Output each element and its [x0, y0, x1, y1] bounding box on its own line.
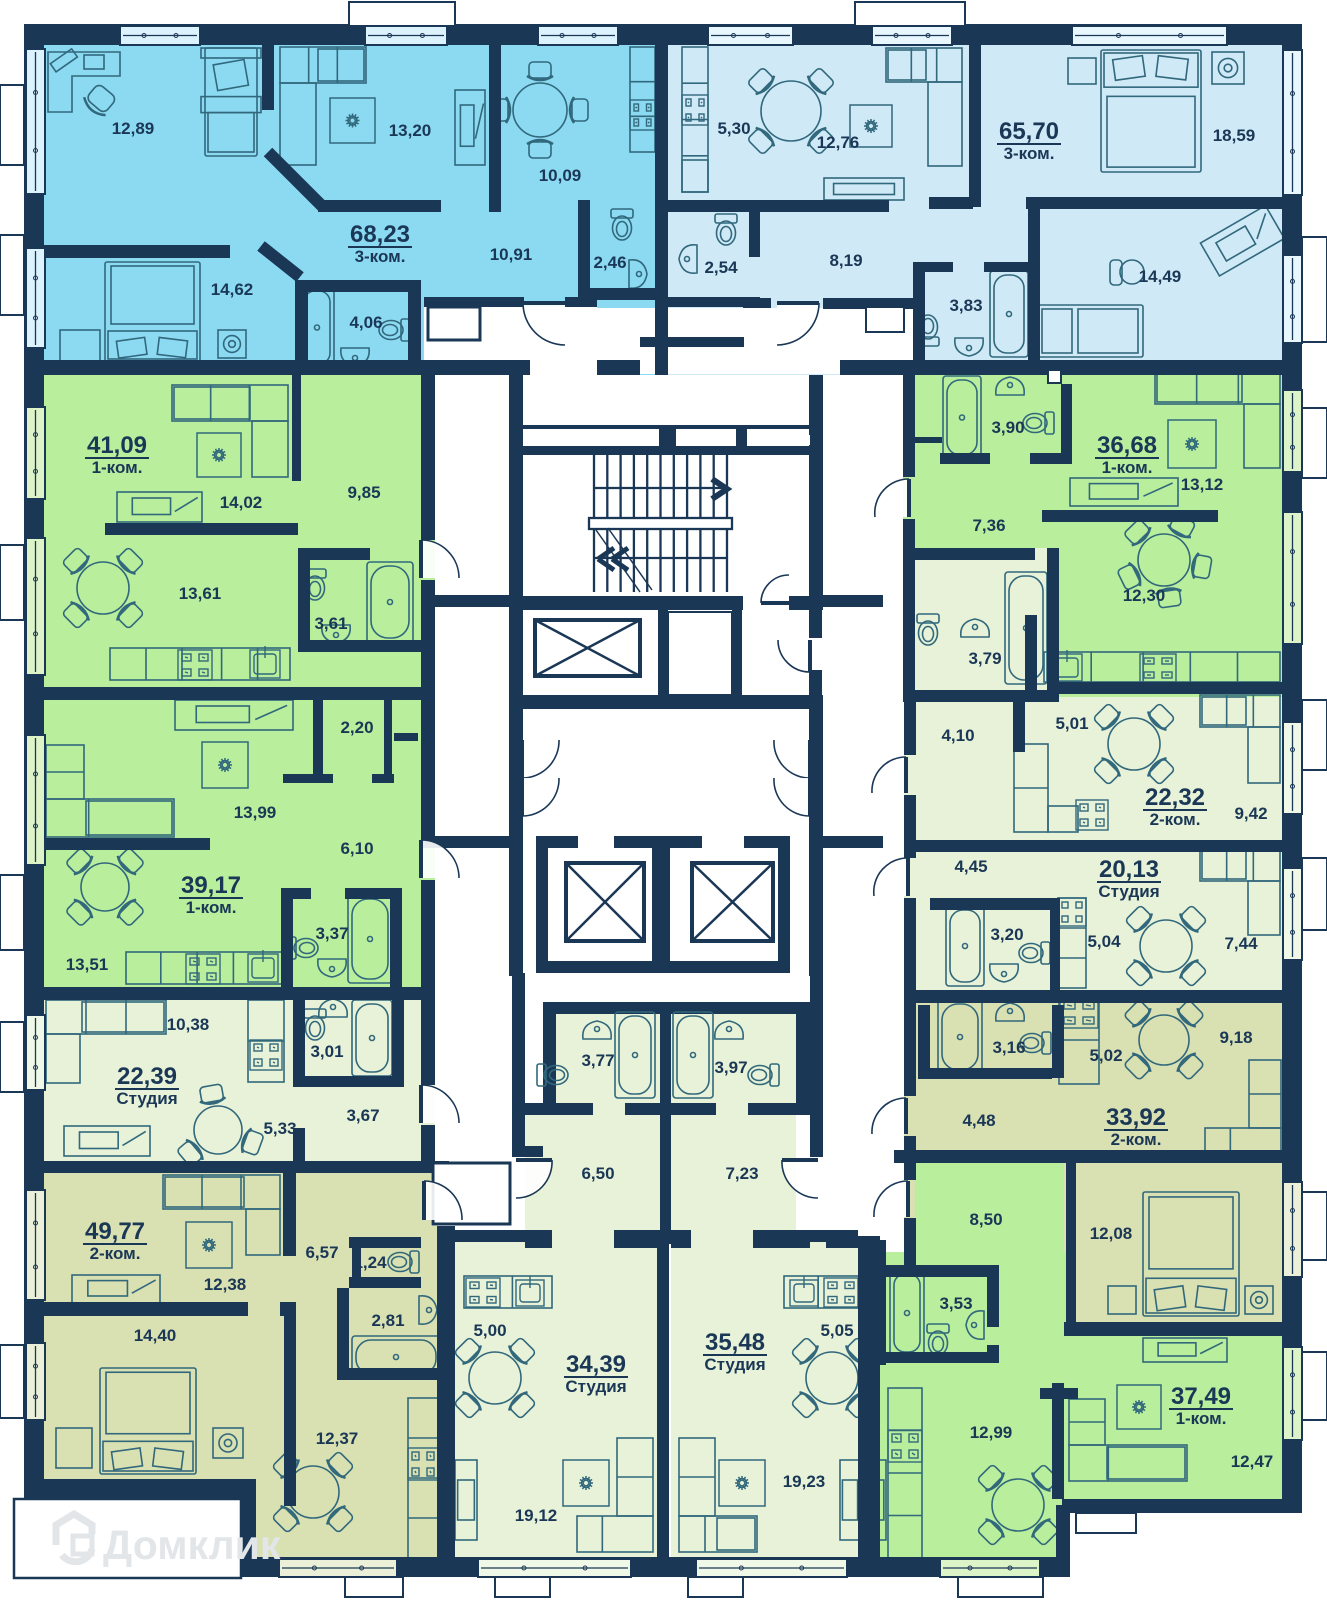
svg-text:49,77: 49,77 [85, 1218, 145, 1245]
svg-text:1,24: 1,24 [353, 1253, 387, 1272]
svg-text:18,59: 18,59 [1213, 126, 1256, 145]
svg-text:2,54: 2,54 [704, 258, 738, 277]
svg-text:12,38: 12,38 [204, 1275, 247, 1294]
svg-text:35,48: 35,48 [705, 1329, 765, 1356]
svg-text:10,38: 10,38 [167, 1015, 210, 1034]
svg-text:Студия: Студия [116, 1089, 177, 1108]
svg-text:1-ком.: 1-ком. [1176, 1409, 1227, 1428]
svg-text:4,06: 4,06 [349, 313, 382, 332]
svg-text:68,23: 68,23 [350, 221, 410, 248]
svg-text:4,48: 4,48 [962, 1111, 995, 1130]
svg-text:12,37: 12,37 [316, 1429, 359, 1448]
svg-text:39,17: 39,17 [181, 872, 241, 899]
svg-text:3,83: 3,83 [949, 296, 982, 315]
svg-text:33,92: 33,92 [1106, 1104, 1166, 1131]
svg-text:19,23: 19,23 [783, 1472, 826, 1491]
svg-text:3,79: 3,79 [968, 649, 1001, 668]
svg-text:1-ком.: 1-ком. [1102, 458, 1153, 477]
svg-text:12,47: 12,47 [1231, 1452, 1274, 1471]
svg-text:14,62: 14,62 [211, 280, 254, 299]
svg-text:34,39: 34,39 [566, 1351, 626, 1378]
svg-text:37,49: 37,49 [1171, 1383, 1231, 1410]
svg-text:5,02: 5,02 [1089, 1046, 1122, 1065]
svg-text:5,00: 5,00 [473, 1321, 506, 1340]
svg-text:10,91: 10,91 [490, 245, 533, 264]
svg-text:3,97: 3,97 [714, 1058, 747, 1077]
svg-text:3,16: 3,16 [992, 1038, 1025, 1057]
svg-text:9,42: 9,42 [1234, 804, 1267, 823]
svg-text:7,23: 7,23 [725, 1164, 758, 1183]
svg-text:3,61: 3,61 [314, 614, 347, 633]
svg-text:3,67: 3,67 [346, 1106, 379, 1125]
svg-text:4,10: 4,10 [941, 726, 974, 745]
svg-text:5,05: 5,05 [820, 1321, 853, 1340]
svg-text:2-ком.: 2-ком. [1111, 1130, 1162, 1149]
svg-text:41,09: 41,09 [87, 432, 147, 459]
svg-text:3,01: 3,01 [310, 1042, 343, 1061]
svg-text:2-ком.: 2-ком. [1150, 810, 1201, 829]
svg-text:13,61: 13,61 [179, 584, 222, 603]
svg-text:36,68: 36,68 [1097, 432, 1157, 459]
svg-text:2,46: 2,46 [593, 253, 626, 272]
svg-text:8,50: 8,50 [969, 1210, 1002, 1229]
svg-text:3,37: 3,37 [315, 924, 348, 943]
svg-text:5,01: 5,01 [1055, 714, 1088, 733]
svg-text:2-ком.: 2-ком. [90, 1244, 141, 1263]
svg-text:6,10: 6,10 [340, 839, 373, 858]
svg-text:Студия: Студия [565, 1377, 626, 1396]
svg-text:14,49: 14,49 [1139, 267, 1182, 286]
svg-text:2,20: 2,20 [340, 718, 373, 737]
svg-text:1-ком.: 1-ком. [92, 458, 143, 477]
svg-text:5,30: 5,30 [717, 119, 750, 138]
svg-text:6,57: 6,57 [305, 1243, 338, 1262]
svg-text:12,08: 12,08 [1090, 1224, 1133, 1243]
svg-text:Студия: Студия [704, 1355, 765, 1374]
svg-text:13,99: 13,99 [234, 803, 277, 822]
svg-text:5,33: 5,33 [263, 1119, 296, 1138]
svg-text:14,40: 14,40 [134, 1326, 177, 1345]
svg-text:3-ком.: 3-ком. [355, 247, 406, 266]
svg-text:9,85: 9,85 [347, 483, 380, 502]
svg-text:3,20: 3,20 [990, 925, 1023, 944]
svg-text:7,36: 7,36 [972, 516, 1005, 535]
svg-text:Домклик: Домклик [103, 1522, 281, 1568]
svg-text:6,50: 6,50 [581, 1164, 614, 1183]
svg-text:13,51: 13,51 [66, 955, 109, 974]
svg-text:13,12: 13,12 [1181, 475, 1224, 494]
svg-text:10,09: 10,09 [539, 166, 582, 185]
svg-text:22,39: 22,39 [117, 1063, 177, 1090]
svg-text:3-ком.: 3-ком. [1004, 144, 1055, 163]
svg-text:12,30: 12,30 [1123, 586, 1166, 605]
svg-text:3,90: 3,90 [991, 418, 1024, 437]
svg-text:65,70: 65,70 [999, 118, 1059, 145]
svg-text:2,81: 2,81 [371, 1311, 404, 1330]
svg-text:12,99: 12,99 [970, 1423, 1013, 1442]
svg-text:13,20: 13,20 [389, 121, 432, 140]
svg-text:19,12: 19,12 [515, 1506, 558, 1525]
svg-text:5,04: 5,04 [1087, 932, 1121, 951]
svg-text:1-ком.: 1-ком. [186, 898, 237, 917]
svg-text:4,45: 4,45 [954, 857, 987, 876]
svg-text:14,02: 14,02 [220, 493, 263, 512]
svg-text:7,44: 7,44 [1224, 934, 1258, 953]
svg-text:8,19: 8,19 [829, 251, 862, 270]
svg-text:3,53: 3,53 [939, 1294, 972, 1313]
svg-text:Студия: Студия [1098, 882, 1159, 901]
svg-text:12,89: 12,89 [112, 119, 155, 138]
svg-text:12,76: 12,76 [817, 133, 860, 152]
svg-text:22,32: 22,32 [1145, 784, 1205, 811]
svg-text:9,18: 9,18 [1219, 1028, 1252, 1047]
svg-text:3,77: 3,77 [581, 1051, 614, 1070]
svg-text:20,13: 20,13 [1099, 856, 1159, 883]
